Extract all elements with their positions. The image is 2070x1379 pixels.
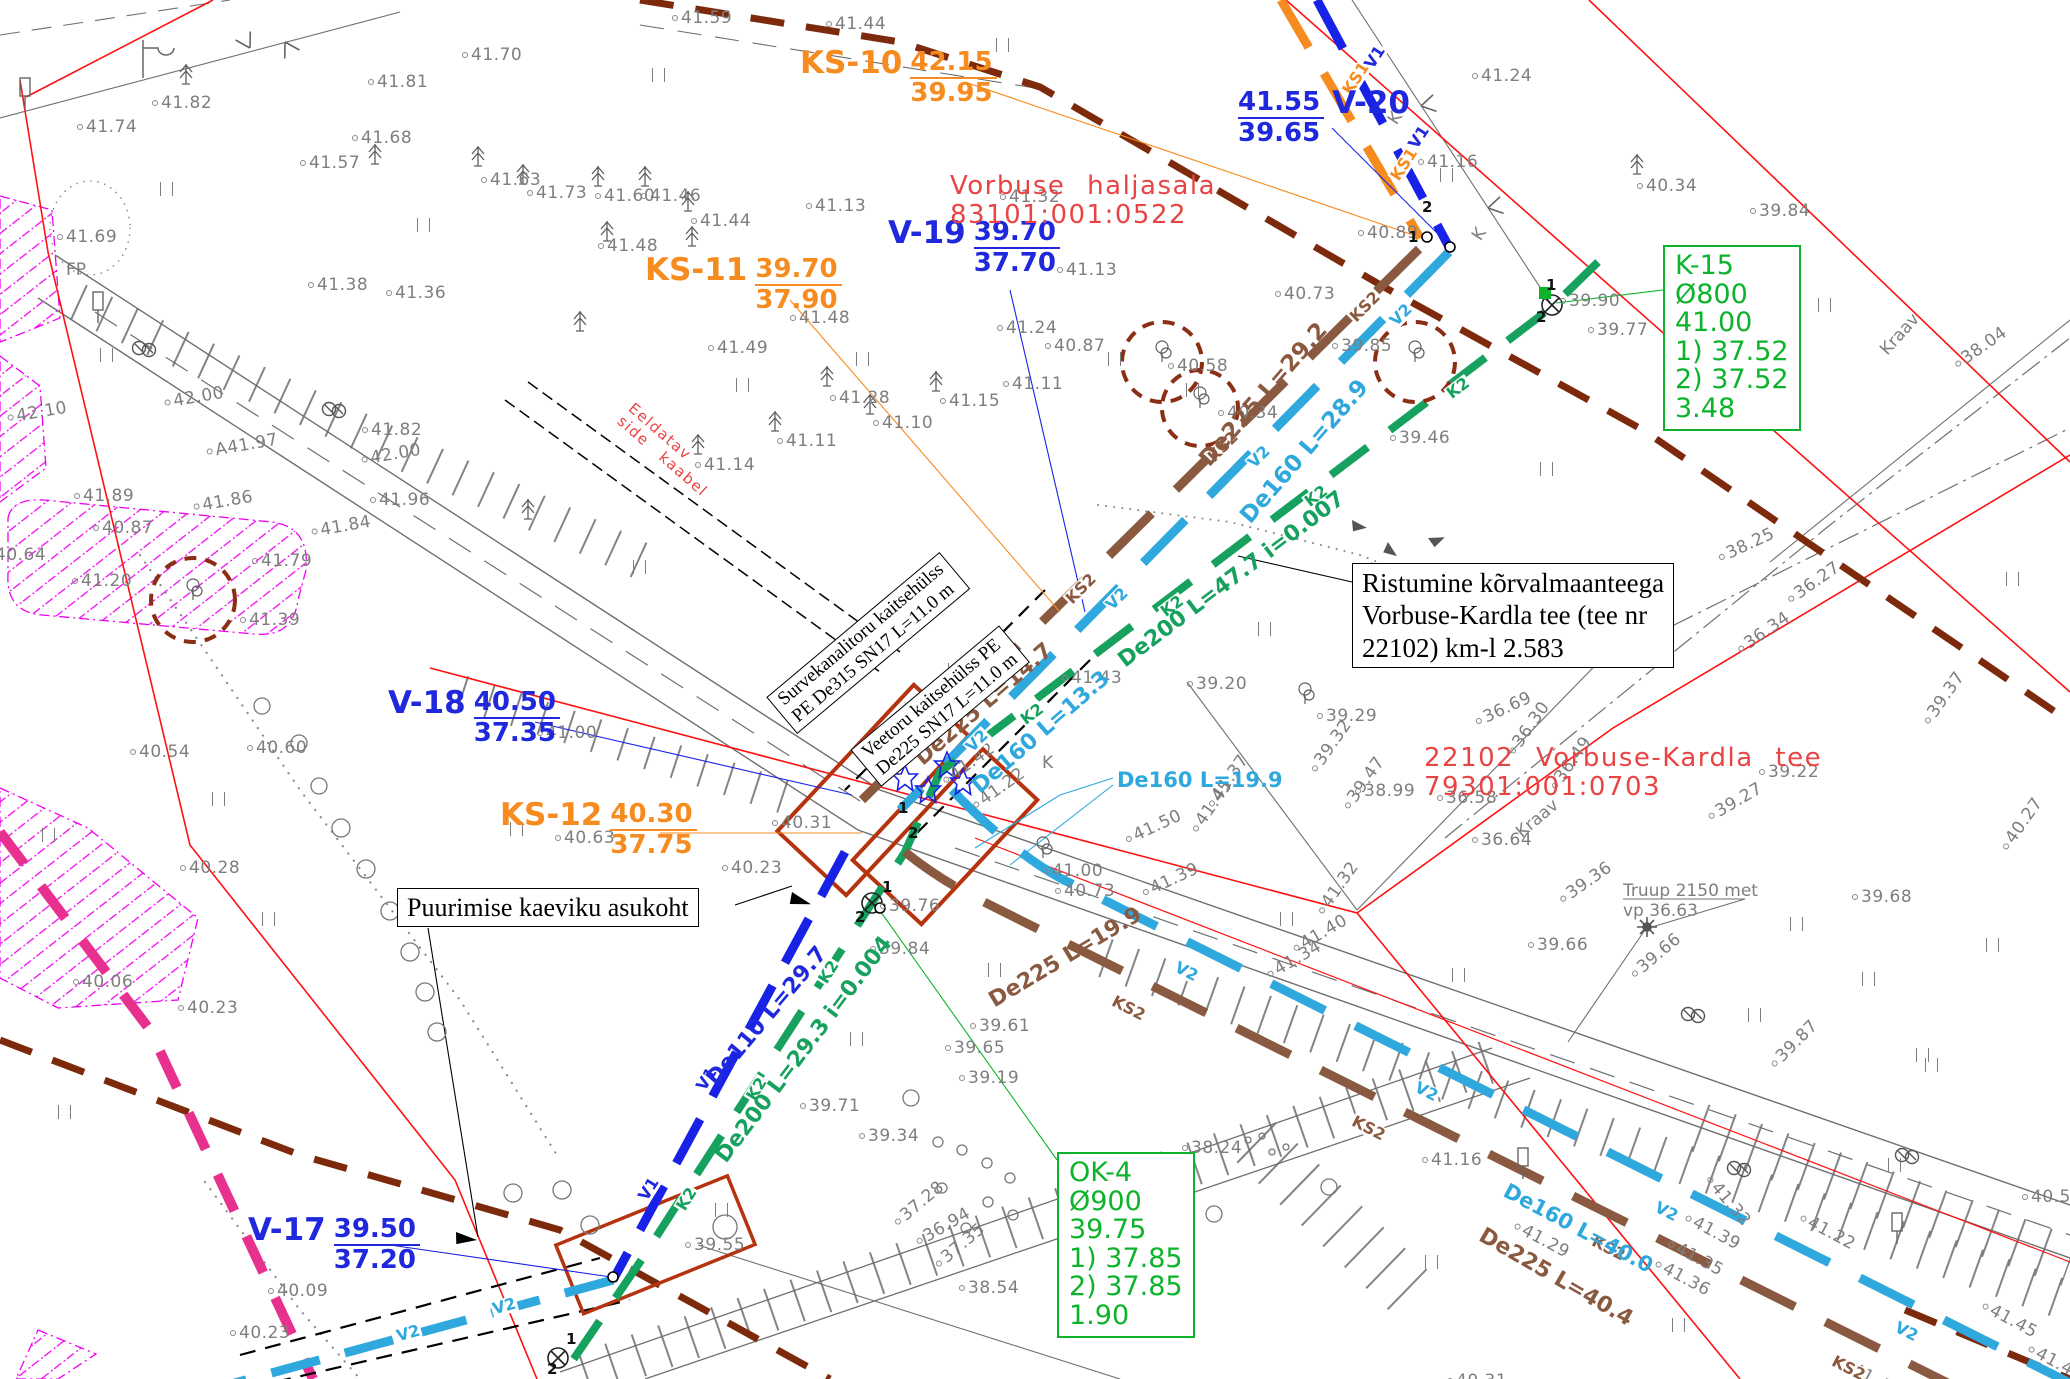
map-text: Truup 2150 met [1623,881,1758,901]
well-elevations: 39.5037.20 [334,1215,420,1274]
well-label-v-17: V-1739.5037.20 [248,1215,420,1274]
grass-symbol-icon [1425,1255,1438,1269]
cadastral-label: 22102 Vorbuse-Kardla tee79301:001:0703 [1424,744,1822,801]
well-elevations: 41.5539.65 [1238,88,1324,147]
spot-elevation: 42.00 [360,440,423,470]
spot-elevation: 40.34 [1637,176,1697,196]
spot-elevation: 41.15 [940,391,1000,411]
spot-elevation: 39.76 [880,896,940,916]
spot-elevation: 41.84 [310,512,373,542]
manhole-data-box-ok-4: OK-4Ø90039.751) 37.852) 37.851.90 [1057,1152,1195,1338]
spot-elevation: 40.27 [1996,794,2047,855]
grass-symbol-icon [2006,572,2019,586]
pipe-tag: V2 [394,1322,423,1344]
spot-elevation: 38.04 [1950,323,2011,374]
spot-elevation: 41.44 [691,211,751,231]
spot-elevation: 39.46 [1390,428,1450,448]
grass-symbol-icon [633,560,646,574]
point-number: 2 [1536,308,1546,326]
spot-elevation: 39.34 [859,1126,919,1146]
grass-symbol-icon [1818,298,1831,312]
spot-elevation: 41.44 [826,14,886,34]
spot-elevation: 40.60 [247,738,307,758]
spot-elevation: 41.46 [2024,1339,2070,1379]
pipe-tag: KS2 [1062,570,1100,608]
spot-elevation: 41.38 [308,275,368,295]
spot-elevation: 41.24 [1472,66,1532,86]
point-number: 1 [566,1330,576,1348]
pipe-dimension-label: De160 L=19.9 [1117,770,1283,791]
spot-elevation: 39.71 [800,1096,860,1116]
spot-elevation: 41.82 [152,93,212,113]
pipe-tag: V2 [1244,442,1273,471]
spot-elevation: 41.86 [192,487,255,517]
pipe-tag: V2 [1171,959,1201,985]
spot-elevation: 41.82 [362,420,422,440]
well-label-ks-11: KS-1139.7037.90 [645,255,842,314]
grass-symbol-icon [1862,972,1875,986]
spot-elevation: 41.69 [57,227,117,247]
note-box-ristumine: Ristumine kõrvalmaanteegaVorbuse-Kardla … [1352,563,1674,668]
well-elevations: 42.1539.95 [910,48,996,107]
well-label-v-18: V-1840.5037.35 [388,688,560,747]
pipe-tag: V2 [1411,1079,1441,1105]
grass-symbol-icon [715,1203,728,1217]
spot-elevation: 41.28 [830,388,890,408]
well-id: KS-11 [645,255,747,286]
well-elevations: 39.7037.90 [755,255,841,314]
grass-symbol-icon [1790,917,1803,931]
spot-elevation: 40.73 [1055,881,1115,901]
spot-elevation: 41.49 [708,338,768,358]
pipe-tag: KS2 [1346,288,1384,326]
spot-elevation: 41.00 [1043,861,1103,881]
pipe-tag: V2 [490,1295,519,1317]
grass-symbol-icon [1888,1158,1901,1172]
well-elevations: 40.5037.35 [474,688,560,747]
grass-symbol-icon [212,792,225,806]
spot-elevation: 40.31 [772,813,832,833]
spot-elevation: 39.90 [1560,291,1620,311]
grass-symbol-icon [856,352,869,366]
grass-symbol-icon [1748,1008,1761,1022]
grass-symbol-icon [58,1105,71,1119]
pipe-tag: K2 [1443,374,1473,402]
spot-elevation: 41.46 [641,186,701,206]
spot-elevation: 41.68 [352,128,412,148]
spot-elevation: 42.00 [163,383,226,413]
well-elevations: 40.3037.75 [610,800,696,859]
spot-elevation: 40.58 [1168,356,1228,376]
spot-elevation: 40.23 [230,1323,290,1343]
grass-symbol-icon [42,828,55,842]
spot-elevation: 42.10 [6,398,69,428]
spot-elevation: 41.89 [74,486,134,506]
spot-elevation: 39.68 [1852,887,1912,907]
spot-elevation: 41.59 [672,8,732,28]
map-text: Kraav [1512,795,1562,842]
spot-elevation: 39.85 [1332,336,1392,356]
spot-elevation: 41.22 [1796,1208,1859,1254]
spot-elevation: 39.37 [1918,668,1969,729]
map-text: FP [66,260,86,280]
spot-elevation: 41.74 [77,117,137,137]
grass-symbol-icon [1672,1318,1685,1332]
spot-elevation: 41.11 [1003,374,1063,394]
well-id: KS-12 [500,800,602,831]
spot-elevation: 41.50 [1122,806,1185,850]
grass-symbol-icon [1186,383,1199,397]
spot-elevation: 40.28 [180,858,240,878]
grass-symbol-icon [100,348,113,362]
spot-elevation: 41.10 [873,413,933,433]
point-number: 2 [547,1360,557,1378]
spot-elevation: 39.66 [1626,929,1685,983]
grass-symbol-icon [736,378,749,392]
point-number: 2 [1422,198,1432,216]
spot-elevation: 39.87 [1766,1016,1823,1073]
well-id: V-20 [1332,88,1410,119]
grass-symbol-icon [262,912,275,926]
well-label-ks-10: KS-1042.1539.95 [800,48,997,107]
spot-elevation: 38.54 [959,1278,1019,1298]
grass-symbol-icon [1986,938,1999,952]
spot-elevation: 39.65 [945,1038,1005,1058]
grass-symbol-icon [1452,968,1465,982]
spot-elevation: 41.79 [252,551,312,571]
spot-elevation: 38.25 [1715,524,1778,568]
spot-elevation: 40.23 [178,998,238,1018]
spot-elevation: 41.73 [527,183,587,203]
pipe-tag: K2 [673,1184,700,1214]
spot-elevation: 40.06 [73,972,133,992]
map-text: K [1042,753,1053,773]
cadastral-label: Eeldatavside kaabel [614,400,721,500]
well-id: V-18 [388,688,466,719]
grass-symbol-icon [1258,622,1271,636]
grass-symbol-icon [1280,912,1293,926]
spot-elevation: 40.23 [722,858,782,878]
spot-elevation: 41.16 [1422,1150,1482,1170]
spot-elevation: 39.55 [685,1235,745,1255]
spot-elevation: 41.36 [386,283,446,303]
spot-elevation: 41.24 [997,318,1057,338]
spot-elevation: 41.32 [1312,858,1363,919]
spot-elevation: 36.27 [1783,558,1844,609]
spot-elevation: 41.13 [806,196,866,216]
spot-elevation: 41.20 [72,571,132,591]
grass-symbol-icon [996,38,1009,52]
pipe-dimension-label: De200 L=47.7 i=0.007 [1115,488,1349,672]
grass-symbol-icon [160,182,173,196]
spot-elevation: 41.11 [777,431,837,451]
point-number: 1 [882,878,892,896]
grass-symbol-icon [1440,168,1453,182]
map-text: K [1468,224,1491,244]
spot-elevation: 39.61 [970,1016,1030,1036]
point-number: 2 [908,824,918,842]
pipe-tag: KS2 [1828,1353,1868,1379]
spot-elevation: 40.57 [2022,1187,2070,1207]
well-label-ks-12: KS-1240.3037.75 [500,800,697,859]
point-number: 1 [1408,228,1418,246]
spot-elevation: 39.36 [1555,858,1616,909]
spot-elevation: 41.81 [368,72,428,92]
pipe-tag: KS2 [1348,1113,1388,1144]
spot-elevation: 40.31 [1447,1371,1507,1379]
well-label-v-20: 41.5539.65V-20 [1238,88,1410,147]
grass-symbol-icon [1925,1058,1938,1072]
spot-elevation: 41.39 [1139,859,1202,903]
spot-elevation: 39.20 [1187,674,1247,694]
spot-elevation: 40.09 [268,1281,328,1301]
grass-symbol-icon [1540,462,1553,476]
cadastral-label: Vorbuse haljasala83101:001:0522 [950,172,1216,229]
map-text: Kraav [1876,310,1924,360]
spot-elevation: 41.96 [370,490,430,510]
point-number: 1 [898,799,908,817]
pipe-tag: V2 [1386,300,1415,329]
spot-elevation: 40.54 [130,742,190,762]
pipe-tag: V1 [635,1174,662,1204]
pipe-tag: V2 [1651,1199,1681,1225]
spot-elevation: 36.34 [1733,608,1794,659]
map-text: vp 36.63 [1623,901,1698,921]
spot-elevation: 39.77 [1588,320,1648,340]
spot-elevation: A41.97 [205,430,280,462]
spot-elevation: 40.87 [1045,336,1105,356]
spot-elevation: 41.13 [1057,260,1117,280]
grass-symbol-icon [1108,352,1121,366]
spot-elevation: 40.73 [1275,284,1335,304]
spot-elevation: 39.19 [959,1068,1019,1088]
point-number: 2 [855,908,865,926]
site-plan-map: 41.5941.4441.7041.8141.8241.7441.6841.57… [0,0,2070,1379]
grass-symbol-icon [417,218,430,232]
spot-elevation: 41.39 [240,610,300,630]
spot-elevation: 41.45 [1978,1296,2041,1342]
spot-elevation: 39.84 [1750,201,1810,221]
well-id: KS-10 [800,48,902,79]
pipe-tag: V2 [1102,584,1131,613]
spot-elevation: 39.66 [1528,935,1588,955]
spot-elevation: 41.70 [462,45,522,65]
point-number: 1 [1546,276,1556,294]
spot-elevation: 40.64 [0,545,46,565]
grass-symbol-icon [988,963,1001,977]
pipe-tag: KS2 [1108,993,1148,1024]
grass-symbol-icon [652,68,665,82]
annotation-layer: 41.5941.4441.7041.8141.8241.7441.6841.57… [0,0,2070,1379]
manhole-data-box-k-15: K-15Ø80041.001) 37.522) 37.523.48 [1663,245,1801,431]
pipe-tag: V2 [1891,1319,1921,1345]
spot-elevation: 40.87 [93,518,153,538]
note-box-puurimine: Puurimise kaeviku asukoht [397,888,699,927]
well-id: V-17 [248,1215,326,1246]
spot-elevation: 41.57 [300,153,360,173]
grass-symbol-icon [850,1032,863,1046]
